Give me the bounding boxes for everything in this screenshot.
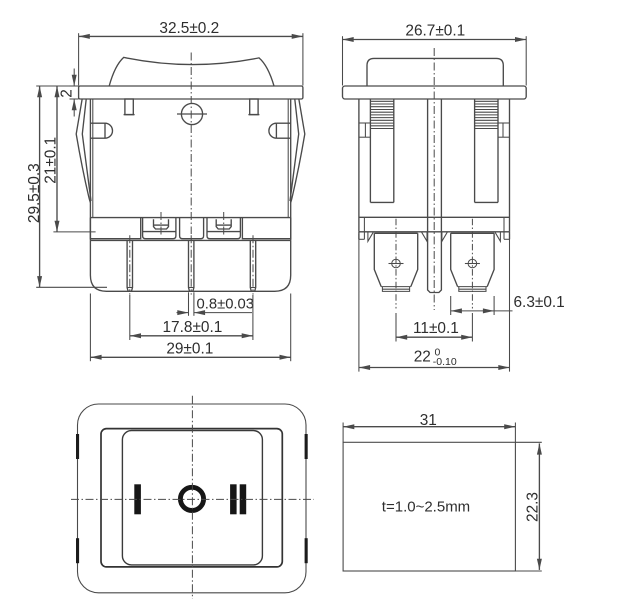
svg-text:6.3±0.1: 6.3±0.1 xyxy=(514,294,565,311)
svg-text:2: 2 xyxy=(58,89,75,98)
svg-text:17.8±0.1: 17.8±0.1 xyxy=(163,319,223,336)
svg-text:29.5±0.3: 29.5±0.3 xyxy=(26,163,43,223)
svg-text:26.7±0.1: 26.7±0.1 xyxy=(405,22,465,39)
svg-text:0.8±0.03: 0.8±0.03 xyxy=(197,296,255,312)
svg-text:-0.10: -0.10 xyxy=(433,356,457,368)
svg-text:t=1.0~2.5mm: t=1.0~2.5mm xyxy=(382,499,470,516)
svg-text:29±0.1: 29±0.1 xyxy=(166,341,213,358)
svg-text:22: 22 xyxy=(414,349,431,366)
svg-text:11±0.1: 11±0.1 xyxy=(413,320,459,337)
svg-text:32.5±0.2: 32.5±0.2 xyxy=(159,20,219,37)
